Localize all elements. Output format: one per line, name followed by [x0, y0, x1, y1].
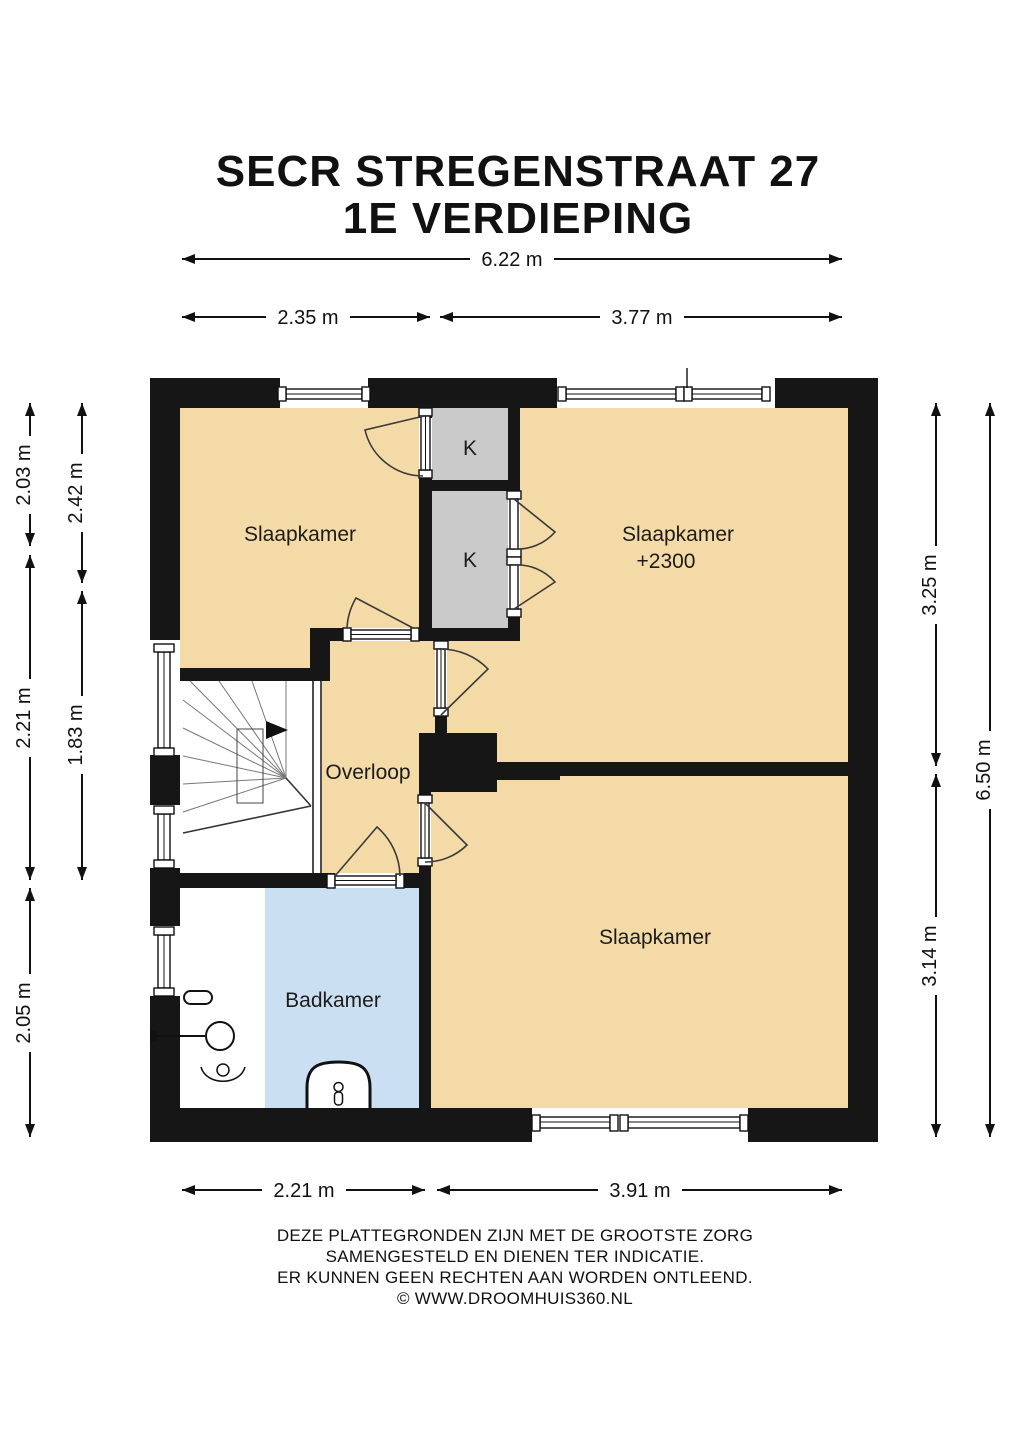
- dim-right-inner-1: 3.25 m: [919, 554, 941, 615]
- dim-left-inner-2: 1.83 m: [65, 704, 87, 765]
- wall-closet-right-2: [508, 617, 520, 628]
- window-top-left: [278, 387, 370, 401]
- room-label-bedroom-bottom: Slaapkamer: [599, 926, 711, 949]
- room-label-bedroom-top-right-height: +2300: [637, 550, 696, 573]
- room-label-bedroom-top-left: Slaapkamer: [244, 523, 356, 546]
- wall-closet-divider: [419, 480, 520, 491]
- wall-closet-left: [419, 476, 432, 628]
- wall-right: [848, 378, 878, 1142]
- toilet-icon: [307, 1062, 370, 1108]
- room-label-bathroom: Badkamer: [285, 989, 381, 1012]
- wall-bedroom-divider: [560, 762, 848, 776]
- window-left-lower: [154, 927, 174, 996]
- wall-top-2: [368, 378, 557, 408]
- wall-divider-stub: [497, 762, 560, 780]
- window-left-middle: [154, 806, 174, 868]
- page-title-line1: SECR STREGENSTRAAT 27: [216, 147, 821, 196]
- wall-bathroom-bedroom3: [419, 873, 431, 1108]
- wall-landing-bedroom2-stub-bottom: [435, 716, 447, 733]
- page-title-line2: 1E VERDIEPING: [343, 194, 693, 243]
- window-left-upper: [154, 644, 174, 756]
- dim-bottom-right: 3.91 m: [609, 1180, 670, 1202]
- floor-staircase: [180, 680, 313, 873]
- room-label-bedroom-top-right: Slaapkamer: [622, 523, 734, 546]
- window-top-right: [558, 368, 770, 401]
- wall-left-3: [150, 868, 180, 926]
- dim-left-outer-3: 2.05 m: [13, 982, 35, 1043]
- room-label-landing: Overloop: [325, 761, 410, 784]
- dim-top-total: 6.22 m: [481, 249, 542, 271]
- wall-chimney-block: [419, 733, 497, 792]
- shower-head-icon: [206, 1022, 234, 1050]
- dim-bottom-left: 2.21 m: [273, 1180, 334, 1202]
- shower-wall-mount-icon: [150, 1030, 157, 1042]
- wall-bedroom1-step: [310, 628, 330, 681]
- dim-left-outer-1: 2.03 m: [13, 444, 35, 505]
- wall-bathroom-top-1: [180, 873, 335, 888]
- dim-left-outer-2: 2.21 m: [13, 687, 35, 748]
- window-bottom: [532, 1115, 748, 1131]
- wall-landing-bedroom3-stub-bottom: [419, 866, 431, 873]
- wall-bottom-1: [150, 1108, 532, 1142]
- sink-tap-icon: [217, 1064, 229, 1076]
- disclaimer: DEZE PLATTEGRONDEN ZIJN MET DE GROOTSTE …: [277, 1226, 753, 1308]
- disclaimer-line1: DEZE PLATTEGRONDEN ZIJN MET DE GROOTSTE …: [277, 1226, 753, 1245]
- wall-bedroom1-bottom-left: [180, 668, 330, 681]
- dim-left-inner-1: 2.42 m: [65, 462, 87, 523]
- dim-right-inner-2: 3.14 m: [919, 925, 941, 986]
- dim-right-outer: 6.50 m: [973, 739, 995, 800]
- wall-left-1: [150, 378, 180, 640]
- wall-bedroom1-door-jamb-left: [330, 628, 343, 641]
- wall-closet-right-1: [508, 408, 520, 499]
- wall-bathroom-top-2: [404, 873, 431, 888]
- disclaimer-line2: SAMENGESTELD EN DIENEN TER INDICATIE.: [326, 1247, 705, 1266]
- radiator-icon: [184, 991, 212, 1004]
- wall-closet-bottom: [419, 628, 520, 641]
- room-label-closet-lower: K: [463, 549, 477, 572]
- floorplan-canvas: SECR STREGENSTRAAT 27 1E VERDIEPING: [0, 0, 1018, 1440]
- floor-landing: [322, 641, 435, 873]
- floorplan-page: SECR STREGENSTRAAT 27 1E VERDIEPING: [0, 0, 1018, 1440]
- wall-left-2: [150, 755, 180, 805]
- disclaimer-copyright: © WWW.DROOMHUIS360.NL: [397, 1289, 633, 1308]
- room-label-closet-upper: K: [463, 437, 477, 460]
- dim-top-right: 3.77 m: [611, 307, 672, 329]
- dim-top-left: 2.35 m: [277, 307, 338, 329]
- disclaimer-line3: ER KUNNEN GEEN RECHTEN AAN WORDEN ONTLEE…: [277, 1268, 753, 1287]
